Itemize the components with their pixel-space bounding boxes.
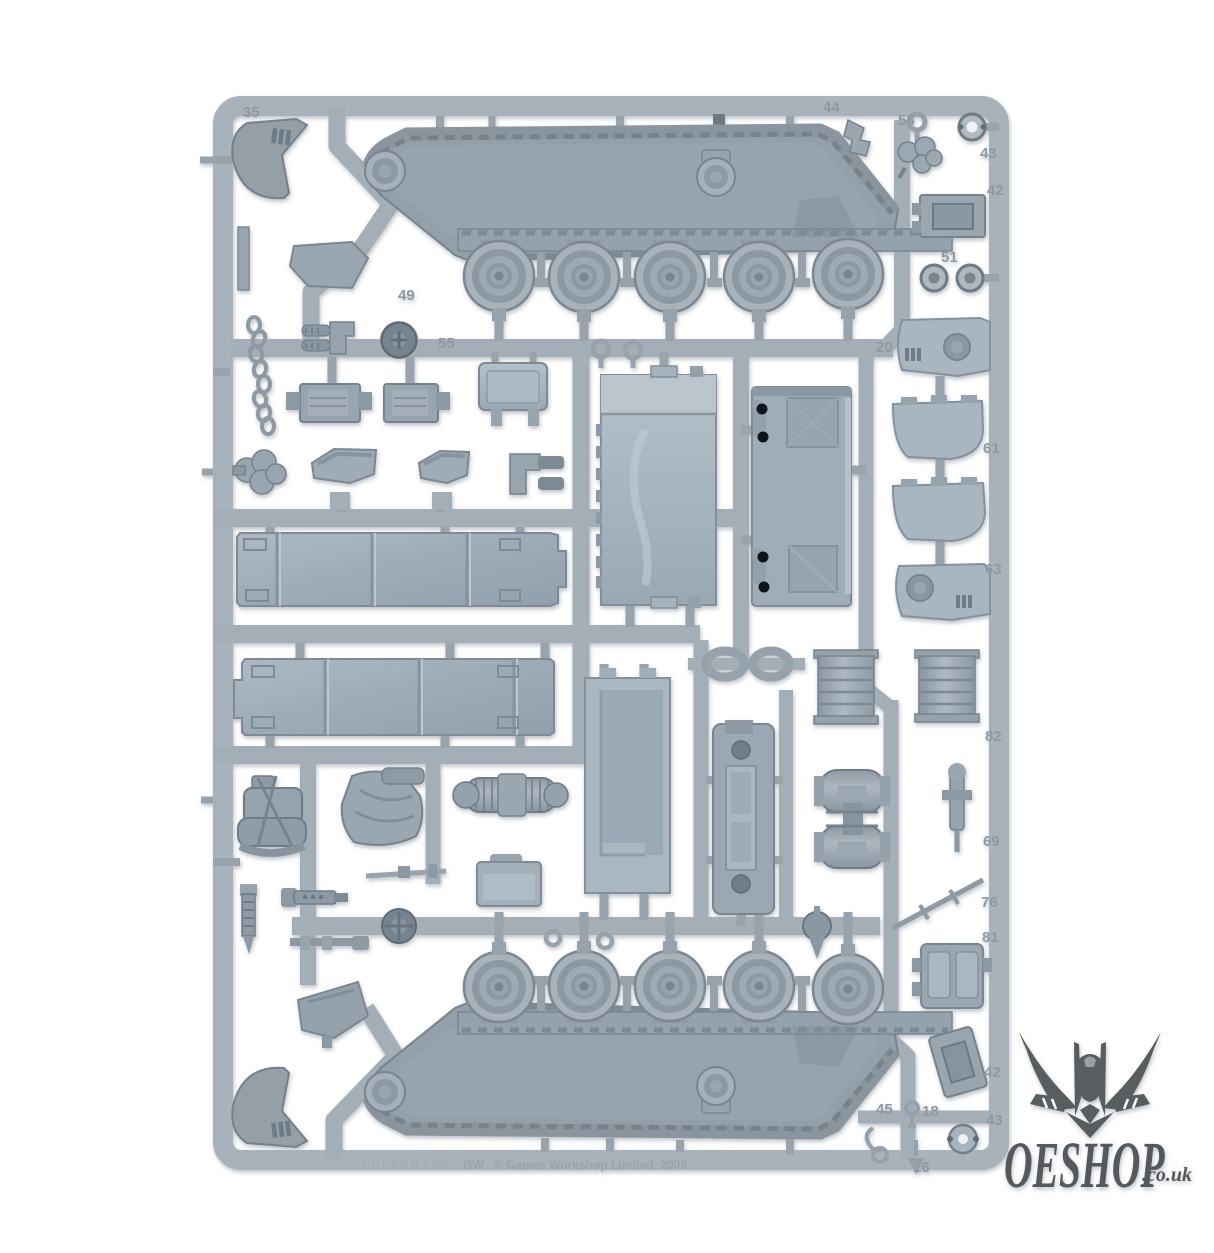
svg-text:20: 20 — [876, 339, 893, 356]
svg-text:18: 18 — [922, 1103, 939, 1120]
svg-text:42: 42 — [987, 182, 1004, 199]
svg-text:44: 44 — [823, 99, 840, 116]
svg-text:43: 43 — [980, 145, 997, 162]
svg-text:16: 16 — [913, 1159, 930, 1176]
svg-text:GW © Games Workshop Limited: GW © Games Workshop Limited 2008 — [463, 1158, 687, 1172]
svg-text:OESHOP: OESHOP — [1004, 1129, 1165, 1202]
svg-text:82: 82 — [985, 728, 1002, 745]
svg-text:49: 49 — [398, 287, 415, 304]
svg-text:NULKHMANN: NULKHMANN — [362, 1159, 452, 1171]
svg-text:42: 42 — [984, 1064, 1001, 1081]
svg-text:45: 45 — [876, 1101, 893, 1118]
svg-text:55: 55 — [438, 335, 455, 352]
svg-text:.co.uk: .co.uk — [1142, 1164, 1192, 1186]
svg-text:63: 63 — [985, 561, 1002, 578]
svg-text:58: 58 — [898, 112, 915, 129]
svg-text:76: 76 — [981, 894, 998, 911]
svg-text:51: 51 — [941, 249, 958, 266]
svg-text:81: 81 — [982, 929, 999, 946]
svg-text:69: 69 — [983, 833, 1000, 850]
svg-text:35: 35 — [243, 104, 260, 121]
svg-text:43: 43 — [986, 1112, 1003, 1129]
svg-text:61: 61 — [983, 440, 1000, 457]
